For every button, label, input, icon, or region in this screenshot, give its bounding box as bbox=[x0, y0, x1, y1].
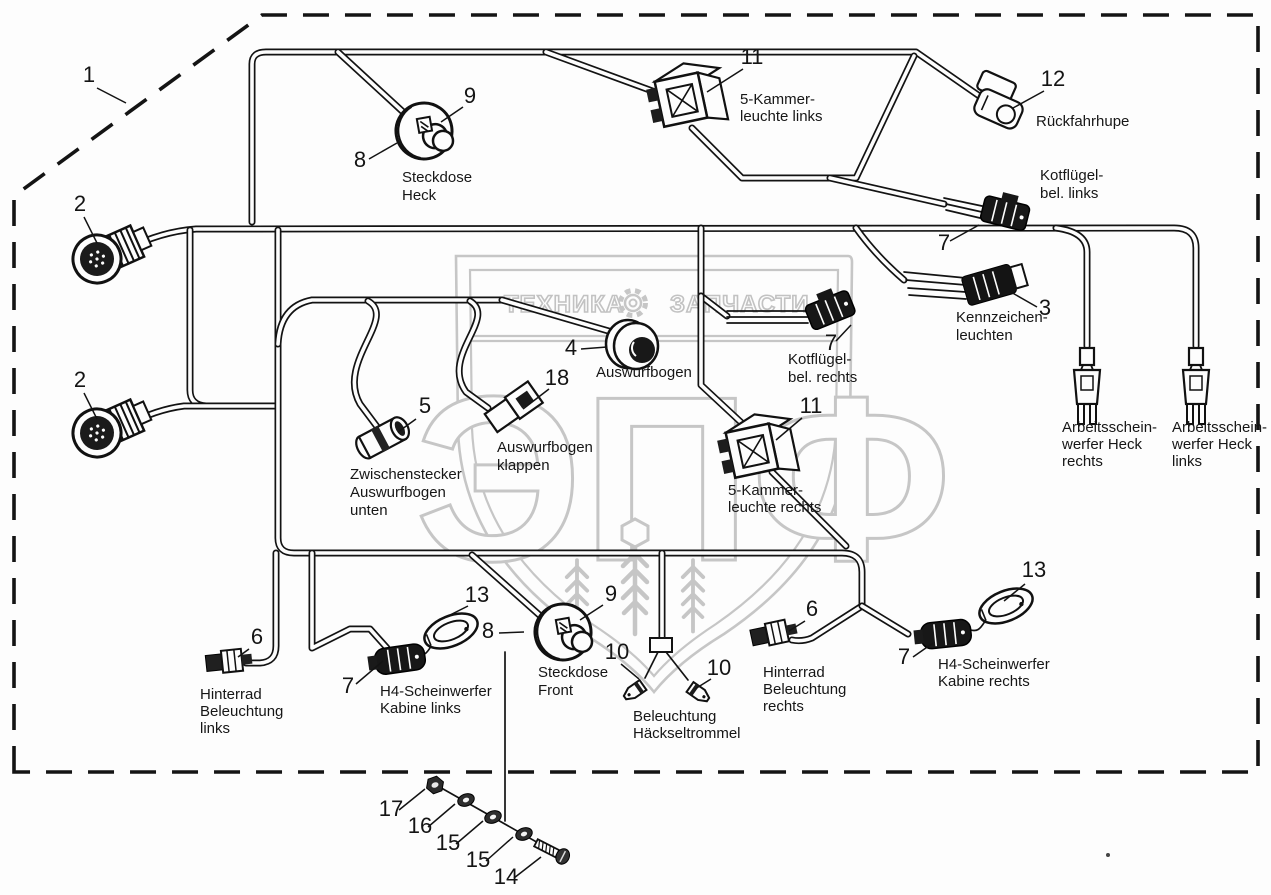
callout-7-bottom-left: 7 bbox=[342, 673, 354, 698]
label-h4-links: H4-Scheinwerfer bbox=[380, 683, 492, 700]
nut-17-icon bbox=[424, 775, 446, 796]
callout-17: 17 bbox=[379, 796, 403, 821]
label-kotfluegel-links: Kotflügel- bbox=[1040, 167, 1103, 184]
label-hinterrad-links-3: links bbox=[200, 720, 230, 737]
label-kammer-rechts-2: leuchte rechts bbox=[728, 499, 821, 516]
label-h4-links-2: Kabine links bbox=[380, 700, 461, 717]
lamp-splitter bbox=[650, 638, 672, 652]
label-hinterrad-rechts: Hinterrad bbox=[763, 664, 825, 681]
callout-5: 5 bbox=[419, 393, 431, 418]
wire bbox=[1056, 228, 1087, 346]
screw-14-icon bbox=[532, 836, 572, 867]
callout-14: 14 bbox=[494, 864, 518, 889]
watermark-monogram: ЭПФ bbox=[415, 347, 952, 610]
label-arbeits-links-3: links bbox=[1172, 453, 1202, 470]
artifact-dot bbox=[1106, 853, 1110, 857]
auswurfbogen-connector-icon bbox=[606, 320, 658, 369]
label-kotfluegel-rechts-2: bel. rechts bbox=[788, 369, 857, 386]
label-beleuchtung-haeckseltrommel: Beleuchtung bbox=[633, 708, 716, 725]
label-beleuchtung-haeckseltrommel-2: Häckseltrommel bbox=[633, 725, 741, 742]
label-arbeits-links-2: werfer Heck bbox=[1171, 436, 1253, 453]
diagram-canvas: ТЕХНИКА ЗАПЧАСТИ ЭПФ bbox=[0, 0, 1271, 895]
callout-6-links: 6 bbox=[251, 624, 263, 649]
callout-11-links: 11 bbox=[741, 44, 764, 69]
label-steckdose-heck-2: Heck bbox=[402, 187, 437, 204]
hinterrad-rechts-connector-icon bbox=[749, 618, 799, 649]
arbeitsscheinwerfer-rechts-plug-icon bbox=[1074, 348, 1100, 424]
label-h4-rechts: H4-Scheinwerfer bbox=[938, 656, 1050, 673]
zwischenstecker-connector-icon bbox=[352, 413, 413, 462]
label-hinterrad-links-2: Beleuchtung bbox=[200, 703, 283, 720]
callout-15b: 15 bbox=[466, 847, 490, 872]
watermark-text-zapchasti: ЗАПЧАСТИ bbox=[670, 291, 810, 318]
callout-10a: 10 bbox=[605, 639, 629, 664]
label-arbeits-rechts-2: werfer Heck bbox=[1061, 436, 1143, 453]
label-hinterrad-rechts-2: Beleuchtung bbox=[763, 681, 846, 698]
callout-12: 12 bbox=[1041, 66, 1065, 91]
callout-9-front: 9 bbox=[605, 581, 617, 606]
label-steckdose-front: Steckdose bbox=[538, 664, 608, 681]
label-kammer-links-2: leuchte links bbox=[740, 108, 823, 125]
wire bbox=[830, 178, 944, 204]
callout-2b: 2 bbox=[74, 367, 86, 392]
washer-15b-icon bbox=[514, 825, 534, 842]
label-steckdose-front-2: Front bbox=[538, 682, 574, 699]
callout-15a: 15 bbox=[436, 830, 460, 855]
callout-1: 1 bbox=[83, 62, 95, 87]
callout-7-bottom-right: 7 bbox=[898, 644, 910, 669]
wire bbox=[1056, 228, 1087, 346]
label-kennzeichen-2: leuchten bbox=[956, 327, 1013, 344]
label-h4-rechts-2: Kabine rechts bbox=[938, 673, 1030, 690]
wire bbox=[190, 230, 206, 406]
callout-10b: 10 bbox=[707, 655, 731, 680]
label-auswurfbogen: Auswurfbogen bbox=[596, 364, 692, 381]
h4-links-connector-icon bbox=[367, 643, 427, 677]
label-kennzeichen: Kennzeichen- bbox=[956, 309, 1048, 326]
round-connector-2b-icon bbox=[65, 389, 157, 465]
washer-15a-icon bbox=[483, 808, 503, 825]
callout-4: 4 bbox=[565, 335, 577, 360]
label-arbeits-rechts: Arbeitsschein- bbox=[1062, 419, 1157, 436]
label-kotfluegel-rechts: Kotflügel- bbox=[788, 351, 851, 368]
callout-7-top: 7 bbox=[938, 230, 950, 255]
label-zwischenstecker: Zwischenstecker bbox=[350, 466, 462, 483]
round-connector-2a-icon bbox=[65, 215, 157, 291]
kotfluegel-rechts-connector-icon bbox=[801, 283, 856, 331]
label-auswurfbogen-klappen-2: klappen bbox=[497, 457, 550, 474]
wiring-harness-diagram: ТЕХНИКА ЗАПЧАСТИ ЭПФ bbox=[0, 0, 1271, 895]
label-kammer-links: 5-Kammer- bbox=[740, 91, 815, 108]
arbeitsscheinwerfer-links-plug-icon bbox=[1183, 348, 1209, 424]
label-auswurfbogen-klappen: Auswurfbogen bbox=[497, 439, 593, 456]
callout-9-heck: 9 bbox=[464, 83, 476, 108]
label-steckdose-heck: Steckdose bbox=[402, 169, 472, 186]
callout-13-left: 13 bbox=[465, 582, 489, 607]
callout-8-heck: 8 bbox=[354, 147, 366, 172]
label-kammer-rechts: 5-Kammer- bbox=[728, 482, 803, 499]
kammerleuchte-links-connector-icon bbox=[642, 56, 730, 134]
label-zwischenstecker-2: Auswurfbogen bbox=[350, 484, 446, 501]
callout-18: 18 bbox=[545, 365, 569, 390]
callout-6-rechts: 6 bbox=[806, 596, 818, 621]
kennzeichenleuchten-connector-icon bbox=[961, 260, 1029, 306]
spade-terminal-left-icon bbox=[622, 680, 647, 702]
label-rueckfahrhupe: Rückfahrhupe bbox=[1036, 113, 1129, 130]
callout-2a: 2 bbox=[74, 191, 86, 216]
rueckfahrhupe-connector-icon bbox=[966, 70, 1031, 131]
h4-rechts-connector-icon bbox=[913, 619, 972, 651]
gear-icon bbox=[621, 291, 646, 316]
spade-terminal-right-icon bbox=[687, 682, 712, 704]
callout-13-right: 13 bbox=[1022, 557, 1046, 582]
wire bbox=[862, 606, 908, 634]
label-arbeits-rechts-3: rechts bbox=[1062, 453, 1103, 470]
label-hinterrad-links: Hinterrad bbox=[200, 686, 262, 703]
callout-11-rechts: 11 bbox=[800, 393, 823, 418]
wire bbox=[312, 553, 387, 648]
label-zwischenstecker-3: unten bbox=[350, 502, 388, 519]
callout-16: 16 bbox=[408, 813, 432, 838]
label-hinterrad-rechts-3: rechts bbox=[763, 698, 804, 715]
label-kotfluegel-links-2: bel. links bbox=[1040, 185, 1098, 202]
callout-8-front: 8 bbox=[482, 618, 494, 643]
label-arbeits-links: Arbeitsschein- bbox=[1172, 419, 1267, 436]
